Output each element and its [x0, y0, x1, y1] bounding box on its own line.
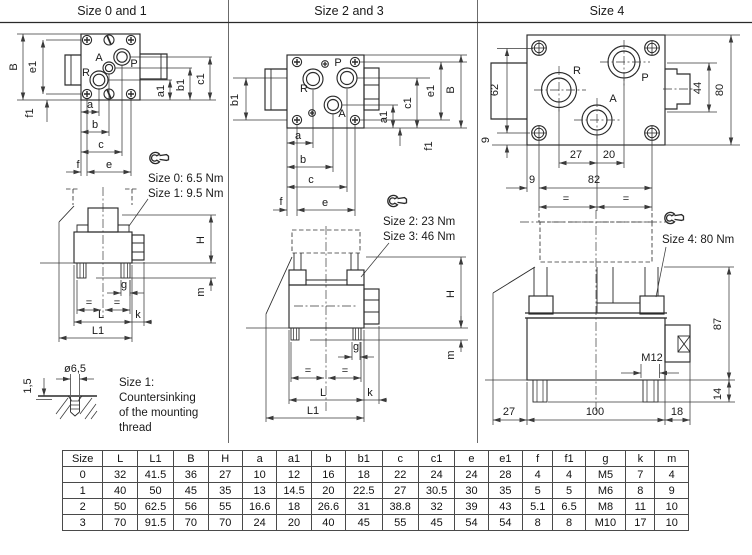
dim-label-e: e	[322, 197, 328, 209]
p3-port-r-label: R	[573, 65, 581, 77]
table-row: 2 50 62.5 56 55 16.6 18 26.6 31 38.8 32 …	[63, 499, 689, 515]
table-cell: 4	[655, 467, 689, 483]
table-cell: 17	[626, 515, 655, 531]
p2-top-view: R P A b1 a b c e f a1 c1 e1 B f1	[229, 55, 467, 216]
dim-label-a: a	[295, 130, 302, 142]
p2-torque-note: Size 2: 23 Nm Size 3: 46 Nm	[361, 195, 455, 277]
table-header-cell: g	[585, 451, 625, 467]
table-cell: 24	[455, 467, 488, 483]
table-cell: 26.6	[311, 499, 345, 515]
dim-label-b1: b1	[229, 94, 241, 106]
table-cell: 36	[174, 467, 208, 483]
dim-label-82: 82	[588, 174, 600, 186]
dim-label-f1: f1	[24, 108, 36, 117]
dim-label-e1: e1	[27, 61, 39, 73]
p1-top-view: R A P B e1 f1 a b c e f a1 b1 c1	[8, 34, 216, 176]
table-header-cell: c	[382, 451, 418, 467]
table-cell: 91.5	[137, 515, 173, 531]
dim-label-M12: M12	[641, 352, 662, 364]
table-header-row: Size L L1 B H a a1 b b1 c c1 e e1 f f1 g…	[63, 451, 689, 467]
p3-port-p-label: P	[641, 72, 648, 84]
p1-side-view: H m g = = L k L1	[40, 187, 216, 342]
table-cell: 5	[523, 483, 553, 499]
table-cell: M8	[585, 499, 625, 515]
dim-label-eq: =	[114, 297, 120, 309]
table-cell: 54	[488, 515, 522, 531]
table-cell: 30	[455, 483, 488, 499]
p2-torque-line2: Size 3: 46 Nm	[383, 231, 455, 243]
table-header-cell: a	[242, 451, 276, 467]
p1-port-r	[90, 71, 108, 89]
screw-icon	[350, 57, 359, 66]
table-header-cell: B	[174, 451, 208, 467]
table-cell: M6	[585, 483, 625, 499]
table-header-cell: m	[655, 451, 689, 467]
technical-drawing: Size 0 and 1 Size 2 and 3 Size 4 R A P B…	[0, 0, 752, 446]
p1-countersink-detail: ø6,5 1,5 Size 1: Countersinking of the m…	[22, 363, 198, 434]
table-cell: 4	[523, 467, 553, 483]
dim-label-B: B	[8, 63, 20, 70]
table-cell: 10	[242, 467, 276, 483]
dim-label-eq: =	[342, 365, 348, 377]
p2-port-r-label: R	[300, 83, 308, 95]
dim-label-m: m	[445, 350, 457, 359]
screw-icon	[126, 89, 135, 98]
table-cell: 28	[488, 467, 522, 483]
table-row: 3 70 91.5 70 70 24 20 40 45 55 45 54 54 …	[63, 515, 689, 531]
table-cell: 8	[553, 515, 585, 531]
table-cell: 20	[311, 483, 345, 499]
dim-label-f: f	[279, 196, 283, 208]
table-cell: 13	[242, 483, 276, 499]
dim-label-27: 27	[570, 149, 582, 161]
table-cell: 32	[103, 467, 137, 483]
countersink-note-line3: of the mounting	[119, 407, 198, 419]
screw-icon	[532, 126, 547, 141]
p2-side-view: H m g = = L k L1	[246, 226, 468, 422]
slotted-screw-icon	[104, 35, 114, 45]
table-cell: 45	[418, 515, 454, 531]
table-cell: 7	[626, 467, 655, 483]
table-cell: 32	[418, 499, 454, 515]
countersink-note-line4: thread	[119, 422, 152, 434]
p3-top-view: R P A 62 9 44 80 27 20 9 82 = =	[480, 35, 740, 222]
table-cell: 16	[311, 467, 345, 483]
table-header-cell: c1	[418, 451, 454, 467]
table-cell: 43	[488, 499, 522, 515]
screw-icon	[82, 89, 91, 98]
table-cell: 31	[346, 499, 382, 515]
dim-label-a1: a1	[378, 111, 390, 123]
table-cell: 40	[311, 515, 345, 531]
dim-label-eq: =	[86, 297, 92, 309]
dim-label-L1: L1	[92, 325, 104, 337]
p3-torque-note: Size 4: 80 Nm	[656, 212, 734, 297]
dim-label-eq: =	[623, 193, 629, 205]
dim-label-f: f	[76, 159, 80, 171]
dim-label-c1: c1	[402, 97, 414, 109]
table-cell: 6.5	[553, 499, 585, 515]
table-cell: 5	[553, 483, 585, 499]
table-cell: 41.5	[137, 467, 173, 483]
dim-label-H: H	[195, 236, 207, 244]
table-cell: 55	[382, 515, 418, 531]
dim-label-b: b	[300, 154, 306, 166]
dim-label-e: e	[106, 159, 112, 171]
table-cell: 18	[346, 467, 382, 483]
p3-torque-line1: Size 4: 80 Nm	[662, 234, 734, 246]
table-header-cell: f1	[553, 451, 585, 467]
table-cell: 22	[382, 467, 418, 483]
table-cell: 35	[208, 483, 242, 499]
table-cell: 4	[553, 467, 585, 483]
dim-label-eq: =	[563, 193, 569, 205]
table-cell: 14.5	[277, 483, 311, 499]
dim-label-B: B	[445, 86, 457, 93]
table-cell: 50	[103, 499, 137, 515]
table-cell: 8	[523, 515, 553, 531]
countersink-note-line2: Countersinking	[119, 392, 196, 404]
table-cell: 1	[63, 483, 103, 499]
dim-label-f1: f1	[423, 141, 435, 150]
table-cell: 18	[277, 499, 311, 515]
table-cell: 16.6	[242, 499, 276, 515]
table-cell: 11	[626, 499, 655, 515]
p1-port-a	[103, 62, 115, 74]
table-cell: 39	[455, 499, 488, 515]
table-cell: 8	[626, 483, 655, 499]
table-header-cell: L	[103, 451, 137, 467]
table-cell: 30.5	[418, 483, 454, 499]
table-cell: 3	[63, 515, 103, 531]
table-cell: 5.1	[523, 499, 553, 515]
table-cell: 54	[455, 515, 488, 531]
table-cell: 55	[208, 499, 242, 515]
table-cell: 24	[242, 515, 276, 531]
dim-label-20: 20	[603, 149, 615, 161]
table-cell: M5	[585, 467, 625, 483]
dim-label-44: 44	[692, 82, 704, 94]
wrench-icon	[150, 152, 169, 163]
dim-label-diameter: ø6,5	[64, 363, 86, 375]
table-header-cell: b	[311, 451, 345, 467]
dim-label-g: g	[121, 279, 127, 291]
table-header-cell: b1	[346, 451, 382, 467]
countersink-note-line1: Size 1:	[119, 377, 154, 389]
small-screw-icon	[309, 110, 316, 117]
p1-torque-line2: Size 1: 9.5 Nm	[148, 188, 223, 200]
dim-label-k: k	[135, 309, 141, 321]
dim-label-c: c	[308, 174, 314, 186]
table-header-cell: e	[455, 451, 488, 467]
table-cell: 9	[655, 483, 689, 499]
table-cell: 20	[277, 515, 311, 531]
table-cell: 38.8	[382, 499, 418, 515]
dim-label-27-side: 27	[503, 406, 515, 418]
table-cell: 10	[655, 515, 689, 531]
table-cell: 12	[277, 467, 311, 483]
p2-port-p	[337, 68, 357, 88]
table-header-cell: H	[208, 451, 242, 467]
dim-label-e1: e1	[425, 85, 437, 97]
p2-port-p-label: P	[334, 57, 341, 69]
p3-port-a-label: A	[609, 93, 617, 105]
dim-label-k: k	[367, 387, 373, 399]
table-header-cell: a1	[277, 451, 311, 467]
dim-label-c: c	[98, 139, 104, 151]
p2-torque-line1: Size 2: 23 Nm	[383, 216, 455, 228]
table-cell: 35	[488, 483, 522, 499]
dimension-table: Size L L1 B H a a1 b b1 c c1 e e1 f f1 g…	[62, 450, 689, 531]
dim-label-87: 87	[712, 318, 724, 330]
table-cell: 0	[63, 467, 103, 483]
dim-label-9-bottom: 9	[529, 174, 535, 186]
p1-port-r-label: R	[82, 67, 90, 79]
screw-icon	[645, 126, 660, 141]
dim-label-depth: 1,5	[22, 378, 34, 393]
dim-label-H: H	[445, 290, 457, 298]
dim-label-a: a	[87, 99, 94, 111]
dim-label-g: g	[353, 341, 359, 353]
dim-label-80: 80	[714, 84, 726, 96]
dim-label-14: 14	[712, 388, 724, 400]
table-row: 1 40 50 45 35 13 14.5 20 22.5 27 30.5 30…	[63, 483, 689, 499]
dim-label-b1: b1	[175, 79, 187, 91]
table-row: 0 32 41.5 36 27 10 12 16 18 22 24 24 28 …	[63, 467, 689, 483]
screw-icon	[82, 35, 91, 44]
p1-torque-line1: Size 0: 6.5 Nm	[148, 173, 223, 185]
panel-title-size-4: Size 4	[590, 4, 625, 18]
panel-title-size-2-3: Size 2 and 3	[314, 4, 384, 18]
table-cell: 56	[174, 499, 208, 515]
table-cell: M10	[585, 515, 625, 531]
valve-mounting-datasheet: Size 0 and 1 Size 2 and 3 Size 4 R A P B…	[0, 0, 752, 555]
dim-label-L1: L1	[307, 405, 319, 417]
table-header-cell: L1	[137, 451, 173, 467]
screw-icon	[292, 57, 301, 66]
table-cell: 45	[346, 515, 382, 531]
table-cell: 2	[63, 499, 103, 515]
table-header-cell: k	[626, 451, 655, 467]
table-cell: 70	[103, 515, 137, 531]
dim-label-a1: a1	[155, 85, 167, 97]
table-cell: 27	[382, 483, 418, 499]
dim-label-b: b	[92, 119, 98, 131]
screw-icon	[645, 41, 660, 56]
table-cell: 10	[655, 499, 689, 515]
table-cell: 22.5	[346, 483, 382, 499]
table-header-cell: e1	[488, 451, 522, 467]
dim-label-c1: c1	[195, 73, 207, 85]
dim-label-62: 62	[489, 84, 501, 96]
table-header-cell: f	[523, 451, 553, 467]
table-cell: 50	[137, 483, 173, 499]
dim-label-L: L	[98, 309, 104, 321]
p1-port-p	[114, 49, 130, 65]
small-screw-icon	[322, 61, 329, 68]
dim-label-100: 100	[586, 406, 604, 418]
p1-port-p-label: P	[130, 58, 137, 70]
dim-label-m: m	[195, 287, 207, 296]
p1-port-a-label: A	[95, 52, 103, 64]
table-cell: 27	[208, 467, 242, 483]
table-cell: 62.5	[137, 499, 173, 515]
dim-label-eq: =	[305, 365, 311, 377]
dim-label-18: 18	[671, 406, 683, 418]
screw-icon	[532, 41, 547, 56]
wrench-icon	[388, 195, 407, 206]
table-cell: 70	[208, 515, 242, 531]
table-cell: 40	[103, 483, 137, 499]
panel-title-size-0-1: Size 0 and 1	[77, 4, 147, 18]
p2-port-a-label: A	[338, 108, 346, 120]
screw-icon	[126, 35, 135, 44]
screw-icon	[350, 115, 359, 124]
dim-label-L: L	[320, 387, 326, 399]
dim-label-9-left: 9	[480, 137, 492, 143]
table-cell: 45	[174, 483, 208, 499]
table-header-cell: Size	[63, 451, 103, 467]
table-cell: 70	[174, 515, 208, 531]
table-cell: 24	[418, 467, 454, 483]
screw-icon	[292, 115, 301, 124]
